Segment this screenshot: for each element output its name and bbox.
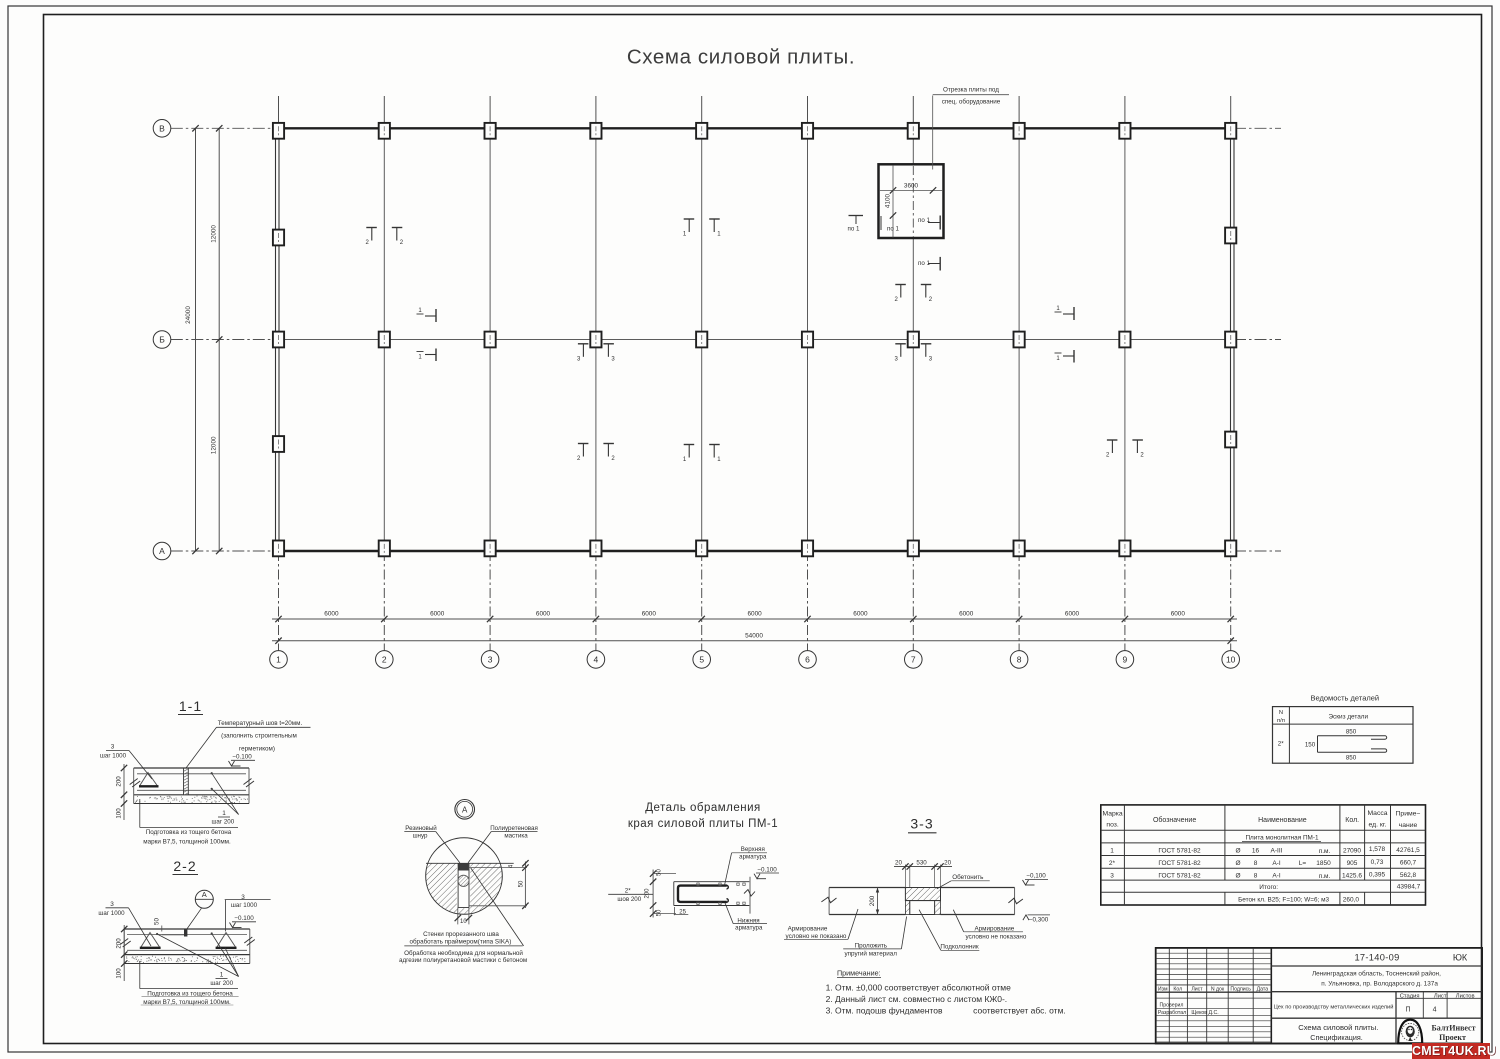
svg-text:200: 200 [116, 776, 123, 787]
svg-text:24000: 24000 [185, 306, 192, 324]
svg-text:марки В7,5, толщиной 100мм.: марки В7,5, толщиной 100мм. [143, 998, 231, 1006]
svg-text:3: 3 [1110, 873, 1114, 880]
svg-text:1: 1 [1056, 356, 1060, 362]
svg-text:9: 9 [1123, 654, 1128, 664]
svg-text:2: 2 [400, 240, 404, 246]
svg-text:1: 1 [1056, 306, 1060, 312]
svg-text:Схема силовой плиты.: Схема силовой плиты. [627, 46, 855, 69]
svg-text:100: 100 [116, 808, 123, 819]
svg-text:−0.100: −0.100 [234, 915, 254, 922]
svg-text:п.м.: п.м. [1319, 848, 1331, 855]
svg-text:Бетон кл. В25; F=100; W=6; м3: Бетон кл. В25; F=100; W=6; м3 [1238, 897, 1329, 904]
svg-text:6000: 6000 [959, 611, 974, 618]
svg-text:1-1: 1-1 [179, 698, 202, 714]
svg-text:поз.: поз. [1106, 821, 1119, 828]
svg-text:43984,7: 43984,7 [1397, 883, 1421, 890]
svg-text:Резиновый: Резиновый [405, 825, 437, 832]
svg-text:Проложить: Проложить [855, 943, 888, 950]
svg-text:чание: чание [1399, 822, 1418, 829]
svg-text:Итого:: Итого: [1259, 884, 1278, 891]
svg-text:обработать праймером(типа SIKA: обработать праймером(типа SIKA) [409, 937, 511, 945]
svg-text:6000: 6000 [430, 611, 445, 618]
svg-text:Спецификация.: Спецификация. [1310, 1033, 1362, 1042]
svg-text:Подготовка из тощего бетона: Подготовка из тощего бетона [146, 828, 232, 836]
svg-text:2: 2 [611, 456, 615, 462]
svg-text:200: 200 [869, 895, 876, 906]
svg-text:−0,100: −0,100 [1026, 873, 1046, 880]
svg-text:Эскиз детали: Эскиз детали [1328, 714, 1368, 721]
svg-text:1425.6: 1425.6 [1342, 873, 1362, 880]
svg-text:3. Отм. подошв фундаментов: 3. Отм. подошв фундаментов соответствует… [826, 1006, 1066, 1016]
svg-text:условно не показано: условно не показано [965, 933, 1026, 940]
svg-text:Кол.: Кол. [1345, 817, 1359, 824]
svg-text:17-140-09: 17-140-09 [1354, 953, 1399, 963]
svg-text:6: 6 [805, 654, 810, 664]
svg-text:50: 50 [518, 880, 524, 887]
svg-text:10: 10 [460, 919, 467, 925]
svg-text:Деталь обрамления: Деталь обрамления [645, 802, 761, 814]
svg-text:Приме−: Приме− [1396, 811, 1421, 818]
svg-text:Обработка необходима для норма: Обработка необходима для нормальной [404, 949, 523, 957]
svg-text:3: 3 [488, 654, 493, 664]
svg-text:марки В7,5, толщиной 100мм.: марки В7,5, толщиной 100мм. [143, 837, 231, 845]
svg-text:1: 1 [418, 355, 422, 361]
svg-text:Полиуретеновая: Полиуретеновая [490, 825, 538, 832]
svg-text:10: 10 [1226, 654, 1236, 664]
svg-text:N: N [1279, 710, 1283, 716]
svg-text:1: 1 [683, 232, 687, 238]
svg-text:Плита монолитная ПМ-1: Плита монолитная ПМ-1 [1245, 835, 1319, 842]
svg-text:2: 2 [1140, 453, 1144, 459]
svg-text:3: 3 [929, 356, 933, 362]
svg-text:(заполнить строительным: (заполнить строительным [221, 733, 297, 740]
svg-text:Лист: Лист [1191, 987, 1203, 993]
svg-text:16: 16 [1252, 847, 1260, 854]
svg-text:3: 3 [110, 901, 114, 908]
svg-text:3: 3 [894, 356, 898, 362]
svg-text:5: 5 [699, 654, 704, 664]
svg-text:3600: 3600 [904, 183, 919, 190]
svg-text:п. Ульяновка, пр. Володарского: п. Ульяновка, пр. Володарского д. 137а [1321, 981, 1438, 988]
svg-text:Наименование: Наименование [1258, 817, 1307, 824]
svg-text:2: 2 [894, 297, 898, 303]
svg-text:L=: L= [1299, 860, 1307, 867]
svg-text:Б: Б [159, 335, 165, 345]
svg-text:ГОСТ 5781-82: ГОСТ 5781-82 [1158, 873, 1201, 880]
svg-text:20: 20 [944, 860, 951, 867]
svg-text:42761,5: 42761,5 [1396, 847, 1420, 854]
svg-text:100: 100 [116, 968, 123, 979]
svg-text:шаг 1000: шаг 1000 [100, 753, 127, 760]
svg-text:шаг 200: шаг 200 [211, 819, 234, 826]
svg-text:3-3: 3-3 [910, 816, 933, 832]
svg-text:ГОСТ 5781-82: ГОСТ 5781-82 [1158, 847, 1201, 854]
svg-text:6000: 6000 [642, 611, 657, 618]
svg-text:Армирование: Армирование [788, 926, 828, 933]
svg-text:3: 3 [111, 744, 115, 751]
svg-text:герметиком): герметиком) [239, 745, 275, 752]
svg-text:50: 50 [657, 909, 663, 916]
svg-text:50: 50 [154, 918, 161, 925]
svg-text:2: 2 [929, 297, 933, 303]
svg-text:6000: 6000 [1065, 611, 1080, 618]
svg-text:2*: 2* [1278, 741, 1284, 748]
svg-text:4: 4 [509, 864, 515, 868]
svg-text:2. Данный лист см. совместно: 2. Данный лист см. совместно с листом КЖ… [826, 994, 1008, 1004]
svg-text:12000: 12000 [211, 225, 218, 243]
svg-text:Подготовка из тощего бетона: Подготовка из тощего бетона [147, 989, 233, 997]
svg-text:Изм: Изм [1158, 987, 1168, 993]
svg-text:Обозначение: Обозначение [1153, 816, 1196, 824]
svg-text:Ведомость деталей: Ведомость деталей [1310, 694, 1379, 703]
svg-text:0,73: 0,73 [1371, 859, 1384, 866]
svg-text:200: 200 [116, 938, 123, 949]
svg-text:А: А [462, 805, 468, 814]
svg-text:Щеков Д.С.: Щеков Д.С. [1191, 1010, 1218, 1016]
svg-text:края силовой плиты ПМ-1: края силовой плиты ПМ-1 [628, 818, 778, 830]
svg-text:1: 1 [1110, 847, 1114, 854]
svg-text:Марка: Марка [1102, 811, 1122, 818]
svg-text:арматура: арматура [735, 925, 763, 932]
svg-text:8: 8 [1254, 860, 1258, 867]
svg-text:7: 7 [911, 654, 916, 664]
svg-text:1: 1 [276, 654, 281, 664]
svg-text:А: А [202, 890, 207, 899]
svg-text:6000: 6000 [853, 611, 868, 618]
svg-text:П: П [1405, 1007, 1410, 1014]
svg-text:2*: 2* [625, 888, 631, 895]
svg-text:12000: 12000 [211, 436, 218, 454]
svg-text:−0.100: −0.100 [232, 754, 252, 761]
svg-text:Отрезка плиты под: Отрезка плиты под [943, 87, 999, 94]
svg-text:905: 905 [1347, 860, 1358, 867]
svg-text:спец. оборудование: спец. оборудование [942, 98, 1001, 106]
svg-text:БалтИнвест: БалтИнвест [1431, 1024, 1475, 1033]
svg-text:3: 3 [611, 356, 615, 362]
svg-text:3: 3 [577, 356, 581, 362]
svg-text:1: 1 [220, 972, 224, 979]
svg-text:660,7: 660,7 [1400, 860, 1417, 867]
svg-text:4: 4 [1433, 1007, 1437, 1014]
svg-text:1850: 1850 [1316, 860, 1331, 867]
svg-text:Лист: Лист [1434, 993, 1447, 999]
svg-text:по 1: по 1 [887, 226, 900, 233]
svg-text:6000: 6000 [747, 611, 762, 618]
svg-text:850: 850 [1346, 728, 1357, 735]
svg-text:1: 1 [418, 308, 422, 314]
svg-text:2*: 2* [1109, 860, 1116, 867]
svg-text:В: В [159, 123, 165, 133]
svg-text:Масса: Масса [1367, 810, 1387, 817]
svg-text:арматура: арматура [739, 854, 767, 861]
svg-text:20: 20 [895, 860, 902, 867]
svg-text:8: 8 [1017, 654, 1022, 664]
svg-text:260,0: 260,0 [1343, 897, 1360, 904]
svg-text:1: 1 [717, 232, 721, 238]
svg-text:200: 200 [645, 888, 651, 899]
svg-text:п.м.: п.м. [1319, 873, 1331, 880]
svg-text:6000: 6000 [1171, 611, 1186, 618]
svg-text:6000: 6000 [536, 611, 551, 618]
svg-text:27090: 27090 [1343, 847, 1361, 854]
svg-text:Верхняя: Верхняя [741, 846, 765, 853]
svg-text:1,578: 1,578 [1369, 846, 1386, 853]
svg-text:4100: 4100 [885, 193, 892, 208]
svg-text:0,395: 0,395 [1369, 871, 1386, 878]
svg-text:Кол: Кол [1173, 987, 1182, 993]
svg-text:Подколонник: Подколонник [940, 943, 978, 950]
svg-text:1: 1 [717, 457, 721, 463]
svg-text:по 1: по 1 [848, 226, 861, 233]
svg-text:Температурный шов t=20мм.: Температурный шов t=20мм. [218, 719, 303, 727]
svg-text:А-I: А-I [1272, 873, 1281, 880]
svg-text:п/п: п/п [1277, 718, 1285, 724]
svg-text:Дата: Дата [1257, 987, 1269, 993]
svg-text:Ø: Ø [1235, 860, 1240, 867]
svg-text:упругий материал: упругий материал [844, 950, 897, 958]
svg-text:25: 25 [679, 910, 686, 916]
svg-text:1: 1 [683, 457, 687, 463]
svg-text:2: 2 [1106, 453, 1110, 459]
svg-text:А-III: А-III [1271, 847, 1283, 854]
svg-text:2-2: 2-2 [173, 858, 196, 874]
svg-text:Проверил: Проверил [1160, 1003, 1184, 1009]
svg-text:Ленинградская область, Тосненс: Ленинградская область, Тосненский район, [1312, 969, 1441, 977]
svg-text:−0,300: −0,300 [1029, 916, 1049, 923]
svg-text:Примечание:: Примечание: [837, 968, 881, 977]
svg-text:6000: 6000 [324, 611, 339, 618]
svg-text:Цех по производству металличес: Цех по производству металлических издели… [1274, 1004, 1394, 1011]
svg-text:Проект: Проект [1439, 1033, 1466, 1042]
svg-text:N док: N док [1211, 987, 1225, 993]
svg-text:шов 200: шов 200 [617, 896, 641, 903]
svg-text:Обетонить: Обетонить [952, 873, 984, 881]
svg-text:Листов: Листов [1456, 993, 1475, 999]
svg-text:шаг 1000: шаг 1000 [98, 910, 125, 917]
svg-text:ГОСТ 5781-82: ГОСТ 5781-82 [1158, 860, 1201, 867]
svg-text:54000: 54000 [745, 633, 763, 640]
svg-text:1. Отм. ±0,000 соответствует: 1. Отм. ±0,000 соответствует абсолютной … [826, 983, 1012, 993]
svg-text:мастика: мастика [504, 832, 528, 839]
svg-text:Разработал: Разработал [1158, 1010, 1186, 1016]
svg-text:шаг 1000: шаг 1000 [231, 902, 258, 909]
svg-text:Схема силовой плиты.: Схема силовой плиты. [1298, 1023, 1378, 1032]
svg-text:530: 530 [916, 860, 927, 867]
svg-text:2: 2 [382, 654, 387, 664]
svg-text:850: 850 [1346, 755, 1357, 762]
svg-text:150: 150 [1305, 741, 1316, 748]
svg-text:ед. кг.: ед. кг. [1369, 821, 1387, 828]
svg-text:2: 2 [577, 456, 581, 462]
svg-text:ЮК: ЮК [1453, 952, 1468, 962]
svg-text:шнур: шнур [413, 832, 428, 839]
svg-text:50: 50 [657, 869, 663, 876]
svg-text:2: 2 [365, 240, 369, 246]
svg-text:Подпись: Подпись [1230, 987, 1251, 993]
svg-text:Стадия: Стадия [1400, 993, 1420, 999]
svg-text:А-I: А-I [1272, 860, 1281, 867]
svg-text:А: А [159, 546, 165, 556]
svg-text:Стенки прорезанного шва: Стенки прорезанного шва [423, 931, 499, 938]
svg-text:4: 4 [594, 654, 599, 664]
svg-text:562,8: 562,8 [1400, 872, 1417, 879]
svg-text:Ø: Ø [1235, 847, 1240, 854]
svg-text:Ø: Ø [1235, 873, 1240, 880]
svg-text:−0.100: −0.100 [757, 866, 777, 873]
svg-text:шаг 200: шаг 200 [210, 980, 233, 987]
svg-text:1: 1 [222, 810, 226, 817]
svg-text:8: 8 [1254, 873, 1258, 880]
svg-text:адгезии полиуретановой мастики: адгезии полиуретановой мастики с бетоном [399, 956, 527, 964]
